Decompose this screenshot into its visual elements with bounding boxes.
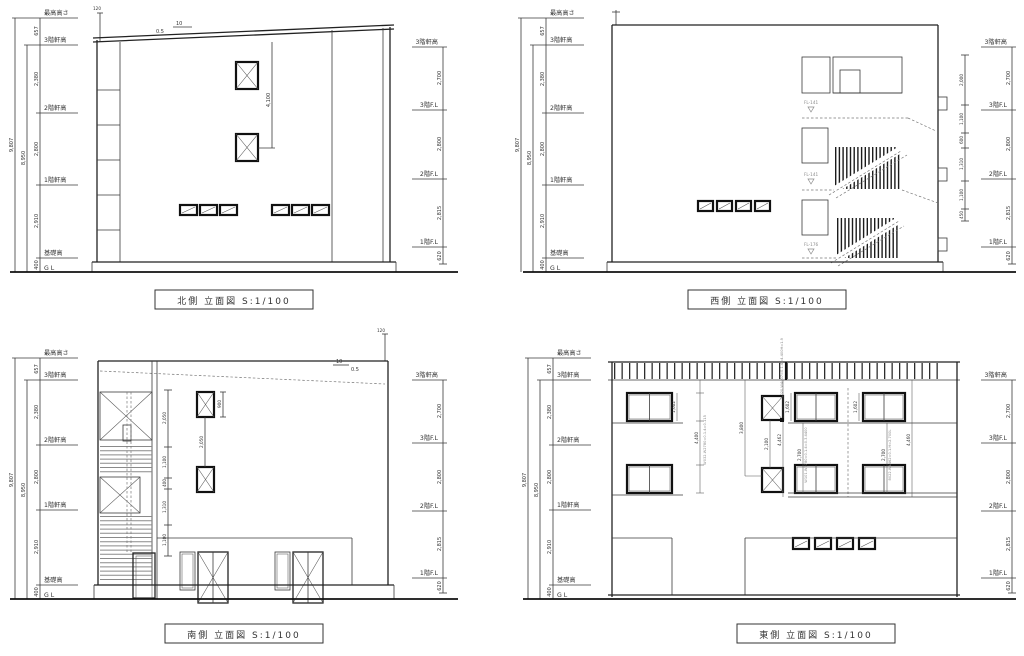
fl-label: FL-176 [804, 242, 819, 247]
dim-total: 9,807 [522, 473, 528, 487]
level-label: 1階F.L [989, 569, 1008, 577]
level-label: 2階軒高 [44, 436, 67, 444]
dim-seg: 2,910 [547, 540, 553, 554]
dim-seg: 400 [34, 260, 40, 270]
window-gap-dim: 2,050 [199, 436, 204, 448]
sliding-window [627, 393, 672, 421]
dim-chain: 450 [959, 211, 964, 219]
caption-text: 西側 立面図 S:1/100 [710, 295, 823, 307]
caption-text: 東側 立面図 S:1/100 [759, 629, 872, 641]
level-label: 3階F.L [420, 434, 439, 442]
north-left-scale: 9,807 8,950 657 2,380 2,800 2,910 400 最高… [9, 9, 78, 272]
level-label: 1階軒高 [557, 501, 580, 509]
level-label: 1階軒高 [550, 176, 573, 184]
dim-label: 4,400 [694, 432, 699, 444]
level-label: 3階軒高 [416, 38, 439, 46]
drawing-sheet: 9,807 8,950 657 2,380 2,800 2,910 400 最高… [0, 0, 1024, 656]
level-label: 最高高さ [557, 349, 582, 357]
level-label: 2階F.L [420, 170, 439, 178]
dim-chain: 1,100 [959, 113, 964, 125]
dim-label: 2,700 [881, 449, 886, 461]
dim-chain: 2,000 [959, 74, 964, 86]
level-label: G L [557, 592, 568, 599]
dim-seg: 620 [437, 581, 443, 591]
dim-seg: 2,380 [34, 72, 40, 86]
dim-chain: 1,100 [162, 456, 167, 468]
dim-seg: 2,700 [1006, 71, 1012, 85]
sliding-window [795, 465, 837, 493]
east-left-scale: 9,807 8,950 657 2,380 2,800 2,910 400 最高… [522, 349, 591, 599]
spec-text: W101.W2780=0.1.4=0.3.4400 [804, 427, 808, 483]
dim-seg: 2,815 [1006, 537, 1012, 551]
level-label: 2階軒高 [550, 104, 573, 112]
fl-label: FL-141 [804, 172, 819, 177]
level-label: 基礎高 [557, 576, 576, 584]
dim-chain: 1,100 [162, 534, 167, 546]
dim-subtotal: 8,950 [527, 151, 533, 165]
level-label: 2階軒高 [557, 436, 580, 444]
dim-seg: 2,380 [34, 405, 40, 419]
level-label: 3階F.L [989, 434, 1008, 442]
spec-text: W032.W2780=0.1.4=0.115 [703, 415, 707, 465]
level-label: 最高高さ [550, 9, 575, 17]
level-label: 2階F.L [420, 502, 439, 510]
dim-seg: 2,800 [437, 470, 443, 484]
dim-seg: 2,700 [1006, 404, 1012, 418]
dim-seg: 2,700 [437, 71, 443, 85]
dim-seg: 2,815 [1006, 206, 1012, 220]
dim-seg: 400 [540, 260, 546, 270]
slope-run: 10 [176, 21, 182, 27]
dim-seg: 2,800 [1006, 137, 1012, 151]
level-label: 3階軒高 [985, 38, 1008, 46]
south-right-scale: 3階軒高 3階F.L 2階F.L 1階F.L 2,700 2,800 2,815… [412, 371, 447, 593]
north-elevation: 9,807 8,950 657 2,380 2,800 2,910 400 最高… [9, 6, 458, 309]
east-building: 8020.W4407=0.1.4=4.400H=1.9 [523, 337, 1016, 599]
level-label: 3階軒高 [557, 371, 580, 379]
dim-label: 3,800 [739, 422, 744, 434]
west-elevation: 9,807 8,950 657 2,380 2,800 2,910 400 最高… [515, 9, 1016, 309]
sliding-window [863, 465, 905, 493]
level-label: 3階軒高 [44, 371, 67, 379]
north-caption: 北側 立面図 S:1/100 [155, 290, 313, 309]
sliding-window [863, 393, 905, 421]
dim-chain: 1,100 [959, 189, 964, 201]
elevations-svg: 9,807 8,950 657 2,380 2,800 2,910 400 最高… [0, 0, 1024, 656]
level-label: 2階F.L [989, 502, 1008, 510]
slope-run: 10 [336, 359, 342, 365]
level-label: 1階F.L [989, 238, 1008, 246]
door-window-pair [275, 552, 323, 603]
door-window-pair [180, 552, 228, 603]
west-caption: 西側 立面図 S:1/100 [688, 290, 846, 309]
dim-seg: 2,380 [547, 405, 553, 419]
dim-label: 2,100 [764, 438, 769, 450]
east-caption: 東側 立面図 S:1/100 [737, 624, 895, 643]
level-label: G L [44, 265, 55, 272]
level-label: 1階F.L [420, 238, 439, 246]
dim-seg: 657 [34, 364, 40, 374]
east-dims: 4,400 1,602 3,800 2,100 4,462 1,602 1,60… [671, 380, 912, 497]
vent-row [793, 538, 875, 549]
vent-row [698, 201, 770, 211]
west-right-scale: 2,000 1,100 600 1,310 1,100 450 3階軒高 3階F… [959, 38, 1016, 264]
dim-seg: 2,800 [437, 137, 443, 151]
south-left-scale: 9,807 8,950 657 2,380 2,800 2,910 400 最高… [9, 349, 78, 599]
sliding-window [795, 393, 837, 421]
level-label: 3階F.L [989, 101, 1008, 109]
dim-total: 9,807 [9, 473, 15, 487]
dim-seg: 2,800 [34, 142, 40, 156]
dim-seg: 2,910 [34, 540, 40, 554]
dim-chain: 1,310 [959, 158, 964, 170]
spec-text: 8020.W4407=0.1.4=4.400H=1.9 [780, 337, 784, 398]
dim-chain: 1,310 [162, 501, 167, 513]
fl-label: FL-141 [804, 100, 819, 105]
north-right-scale: 3階軒高 3階F.L 2階F.L 1階F.L 2,700 2,800 2,815… [412, 38, 447, 264]
slope-rise: 0.5 [351, 367, 359, 373]
dim-seg: 2,815 [437, 206, 443, 220]
dim-seg: 657 [540, 26, 546, 36]
dim-label: 4,460 [906, 434, 911, 446]
dim-label: 2,700 [797, 449, 802, 461]
dim-seg: 2,910 [34, 214, 40, 228]
west-left-scale: 9,807 8,950 657 2,380 2,800 2,910 400 最高… [515, 9, 584, 272]
dim-seg: 2,380 [540, 72, 546, 86]
antenna-dim: 120 [93, 6, 101, 11]
south-dim-chain: 2,050 1,100 400 1,310 1,100 [162, 390, 172, 556]
slope-rise: 0.5 [156, 29, 164, 35]
window-dim: 4,100 [266, 93, 272, 107]
dim-label: 1,602 [671, 401, 676, 413]
level-label: 1階F.L [420, 569, 439, 577]
dim-seg: 2,800 [547, 470, 553, 484]
dim-total: 9,807 [515, 138, 521, 152]
spec-text: 8022.W4462=0.1.H=2.700L [888, 430, 892, 481]
level-label: 最高高さ [44, 349, 69, 357]
dim-seg: 2,815 [437, 537, 443, 551]
dim-seg: 2,800 [34, 470, 40, 484]
dim-label: 4,462 [777, 434, 782, 446]
level-label: 基礎高 [44, 249, 63, 257]
east-elevation: 9,807 8,950 657 2,380 2,800 2,910 400 最高… [522, 337, 1016, 643]
dim-chain: 2,050 [162, 412, 167, 424]
dim-seg: 2,910 [540, 214, 546, 228]
dim-seg: 657 [34, 26, 40, 36]
dim-seg: 2,700 [437, 404, 443, 418]
antenna-dim: 120 [377, 328, 385, 333]
level-label: 3階軒高 [416, 371, 439, 379]
south-building: 120 10 0.5 [10, 328, 458, 603]
south-caption: 南側 立面図 S:1/100 [165, 624, 323, 643]
level-label: 1階軒高 [44, 501, 67, 509]
dim-seg: 620 [1006, 251, 1012, 261]
level-label: 基礎高 [550, 249, 569, 257]
dim-total: 9,807 [9, 138, 15, 152]
dim-seg: 400 [547, 587, 553, 597]
dim-seg: 620 [437, 251, 443, 261]
dim-seg: 2,800 [540, 142, 546, 156]
dim-subtotal: 8,950 [534, 483, 540, 497]
caption-text: 北側 立面図 S:1/100 [177, 295, 290, 307]
sliding-window [627, 465, 672, 493]
east-right-scale: 3階軒高 3階F.L 2階F.L 1階F.L 2,700 2,800 2,815… [981, 371, 1016, 593]
level-label: 3階軒高 [550, 36, 573, 44]
caption-text: 南側 立面図 S:1/100 [187, 629, 300, 641]
level-label: 2階F.L [989, 170, 1008, 178]
dim-label: 1,602 [853, 401, 858, 413]
window-height-dim: 900 [217, 400, 222, 408]
dim-seg: 620 [1006, 581, 1012, 591]
window-hatched [236, 62, 258, 161]
west-building: FL-141 FL-141 FL-176 [523, 10, 1016, 272]
vent-row [180, 205, 329, 215]
level-label: G L [550, 265, 561, 272]
dim-chain: 400 [162, 479, 167, 487]
dim-seg: 400 [34, 587, 40, 597]
level-label: 基礎高 [44, 576, 63, 584]
level-label: 3階軒高 [985, 371, 1008, 379]
dim-chain: 600 [959, 136, 964, 144]
level-label: 3階軒高 [44, 36, 67, 44]
dim-subtotal: 8,950 [21, 483, 27, 497]
level-label: G L [44, 592, 55, 599]
level-label: 1階軒高 [44, 176, 67, 184]
level-label: 最高高さ [44, 9, 69, 17]
dim-label: 1,602 [785, 401, 790, 413]
north-building: 120 10 0.5 [10, 6, 458, 272]
dim-subtotal: 8,950 [21, 151, 27, 165]
dim-seg: 657 [547, 364, 553, 374]
south-elevation: 9,807 8,950 657 2,380 2,800 2,910 400 最高… [9, 328, 458, 643]
level-label: 2階軒高 [44, 104, 67, 112]
level-label: 3階F.L [420, 101, 439, 109]
dim-seg: 2,800 [1006, 470, 1012, 484]
